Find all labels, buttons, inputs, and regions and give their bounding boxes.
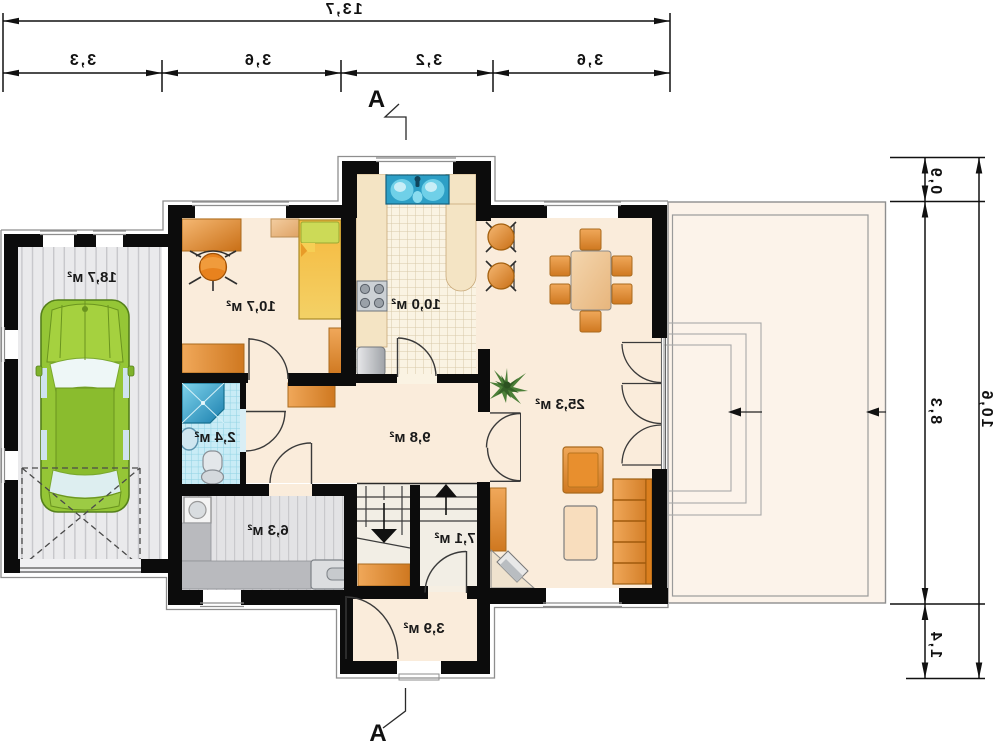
svg-text:18,7 м²: 18,7 м² <box>67 269 116 286</box>
svg-text:3,9 м²: 3,9 м² <box>403 620 444 637</box>
svg-text:25,3 м²: 25,3 м² <box>535 396 584 413</box>
svg-text:3,6: 3,6 <box>243 52 271 69</box>
svg-text:3,3: 3,3 <box>68 52 96 69</box>
svg-text:9,8 м²: 9,8 м² <box>389 429 430 446</box>
svg-text:1,4: 1,4 <box>927 630 944 658</box>
svg-text:7,1 м²: 7,1 м² <box>434 530 475 547</box>
svg-text:13,7: 13,7 <box>323 1 362 18</box>
svg-text:10,7 м²: 10,7 м² <box>226 298 275 315</box>
svg-text:3,2: 3,2 <box>414 52 442 69</box>
svg-text:8,3: 8,3 <box>927 396 944 424</box>
svg-text:3,6: 3,6 <box>575 52 603 69</box>
svg-text:10,6: 10,6 <box>978 388 995 427</box>
svg-text:A: A <box>369 720 386 744</box>
svg-text:10,0 м²: 10,0 м² <box>391 296 440 313</box>
svg-text:6,3 м²: 6,3 м² <box>247 522 288 539</box>
svg-text:2,4 м²: 2,4 м² <box>194 429 235 446</box>
svg-text:A: A <box>368 86 385 113</box>
svg-text:0,9: 0,9 <box>927 166 944 194</box>
